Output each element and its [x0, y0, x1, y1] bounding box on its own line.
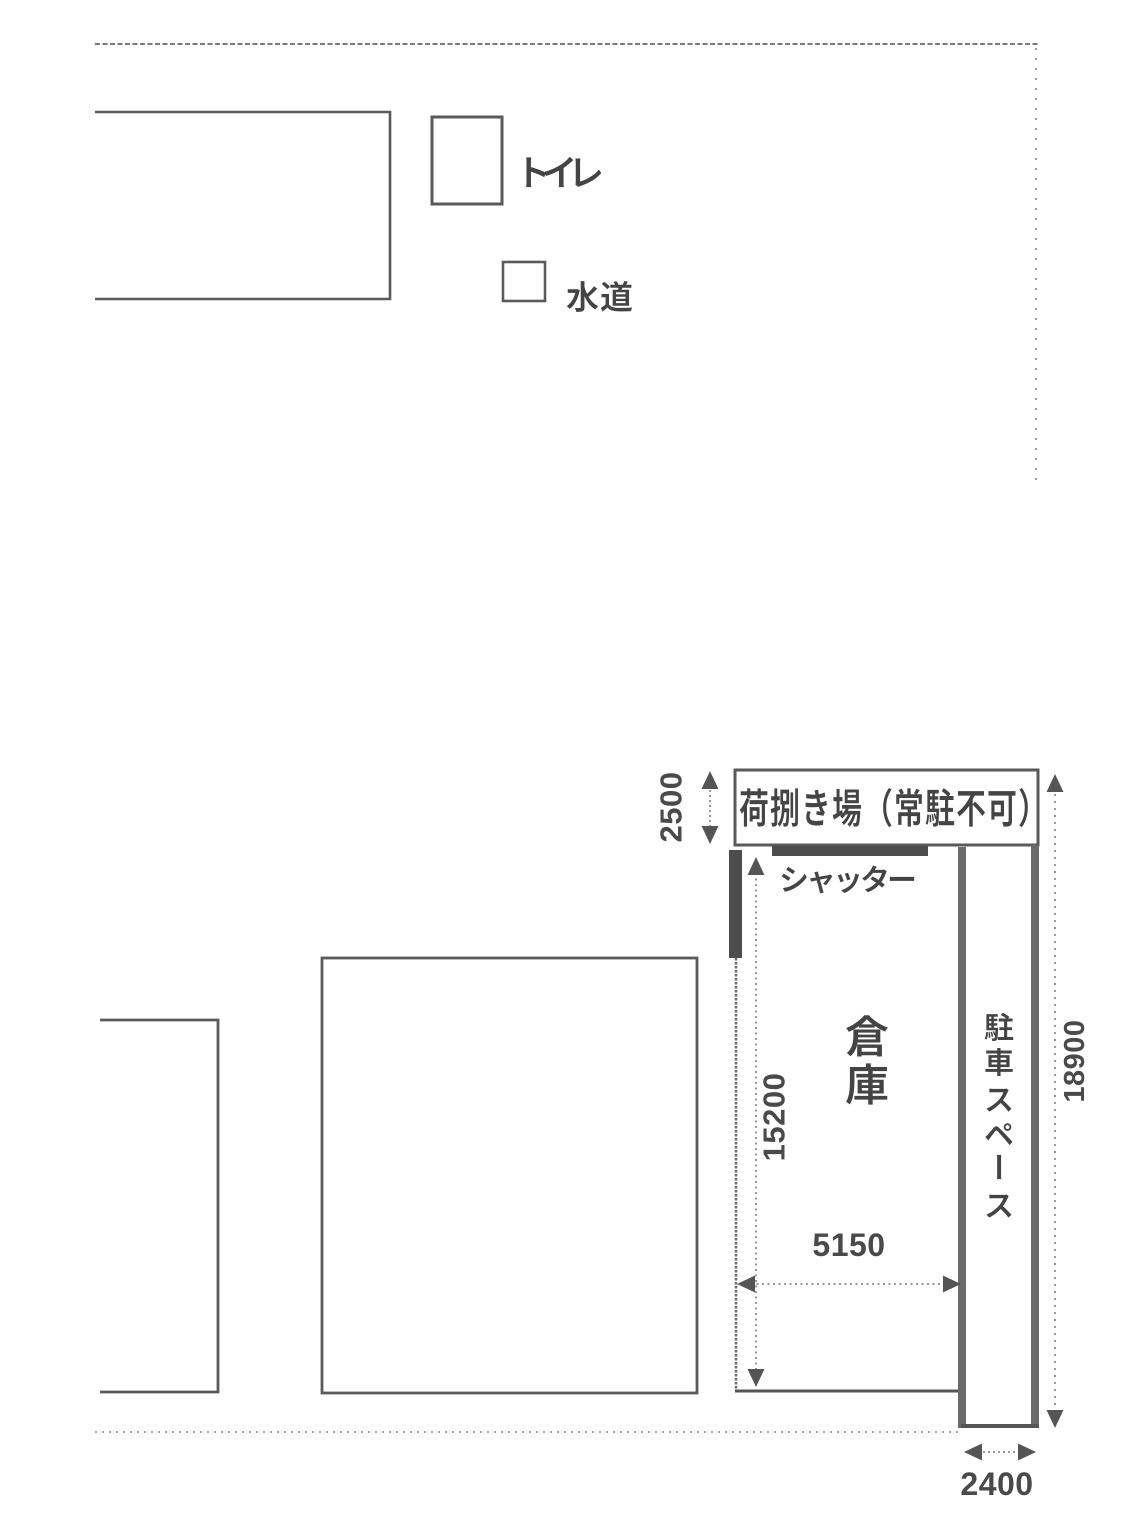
- svg-text:15200: 15200: [757, 1073, 792, 1162]
- svg-text:18900: 18900: [1059, 1019, 1091, 1102]
- svg-text:5150: 5150: [812, 1227, 885, 1263]
- svg-text:2500: 2500: [654, 772, 689, 843]
- svg-text:2400: 2400: [960, 1466, 1033, 1502]
